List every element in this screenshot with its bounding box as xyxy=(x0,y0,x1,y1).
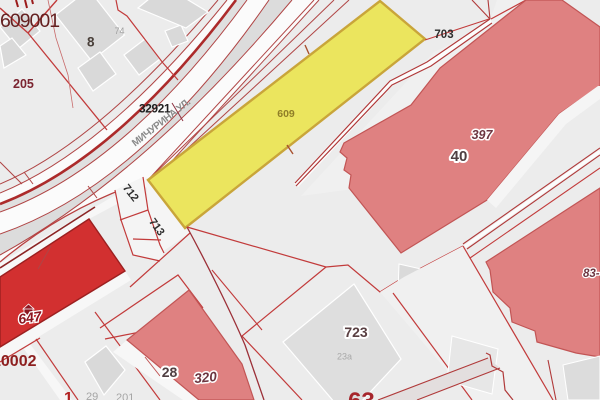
svg-text:609001: 609001 xyxy=(0,10,59,32)
svg-text:647: 647 xyxy=(17,308,44,327)
svg-text:723: 723 xyxy=(344,324,368,340)
svg-text:320: 320 xyxy=(194,369,218,386)
svg-text:63: 63 xyxy=(348,388,375,400)
svg-text:28: 28 xyxy=(162,364,178,380)
svg-text:83-: 83- xyxy=(583,268,600,280)
svg-text:1: 1 xyxy=(64,390,73,400)
svg-text:8: 8 xyxy=(87,35,95,50)
svg-text:23а: 23а xyxy=(337,352,352,362)
svg-text:40: 40 xyxy=(451,148,468,165)
svg-text:609: 609 xyxy=(277,108,295,120)
svg-text:397: 397 xyxy=(472,128,494,142)
svg-text:205: 205 xyxy=(13,77,34,91)
svg-text:201: 201 xyxy=(116,392,134,400)
svg-text:74: 74 xyxy=(115,26,125,36)
svg-text:703: 703 xyxy=(434,29,453,41)
svg-text:29: 29 xyxy=(86,391,98,400)
svg-text:10002: 10002 xyxy=(0,353,37,370)
